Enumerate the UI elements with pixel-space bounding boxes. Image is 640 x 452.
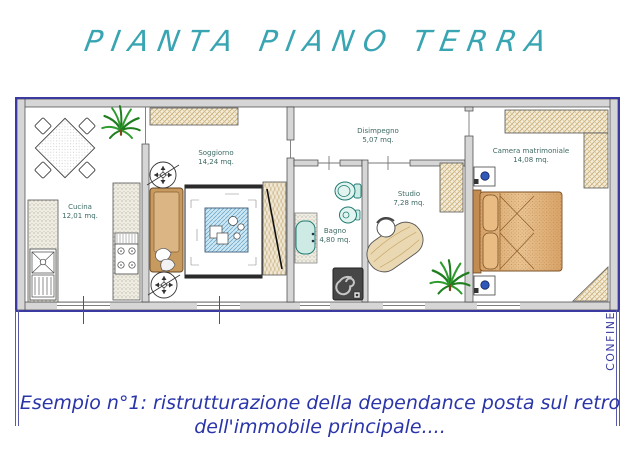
room-label-cucina: Cucina12,01 mq. (62, 203, 98, 221)
studio-cabinet (440, 163, 463, 212)
room-label-bagno: Bagno4,80 mq. (319, 227, 350, 245)
room-label-soggiorno: Soggiorno14,24 mq. (198, 149, 234, 167)
desk-chair (377, 218, 395, 237)
nightstand-top (474, 167, 495, 186)
kitchen-counter-left (28, 200, 58, 302)
bath-sink (295, 213, 317, 263)
caption: Esempio n°1: ristrutturazione della depe… (0, 392, 640, 440)
toilet (335, 182, 361, 200)
kitchen-counter-stove (113, 183, 140, 300)
room-label-disimpegno: Disimpegno5,07 mq. (357, 127, 399, 145)
wardrobe-top (505, 110, 608, 133)
section-tick-1 (83, 296, 84, 324)
floor-plan-drawing (17, 99, 618, 310)
closet-soggiorno (150, 108, 238, 125)
plant-kitchen (102, 106, 139, 138)
round-symbol-top (147, 162, 179, 188)
sofa (150, 188, 183, 272)
wardrobe-right (584, 133, 608, 188)
page-title: PIANTA PIANO TERRA (0, 24, 640, 58)
caption-line-1: Esempio n°1: ristrutturazione della depe… (0, 392, 640, 416)
double-bed (473, 190, 562, 273)
coffee-table (205, 208, 248, 252)
plant-studio (430, 260, 469, 293)
bidet (340, 207, 361, 223)
nightstand-bottom (474, 276, 495, 295)
corner-shelf (573, 267, 608, 301)
floor-plan-page: PIANTA PIANO TERRA (0, 0, 640, 452)
tv-cabinet (263, 182, 286, 275)
room-label-studio: Studio7,28 mq. (393, 190, 424, 208)
shower (333, 268, 363, 300)
caption-line-2: dell'immobile principale.... (0, 416, 640, 440)
kitchen-dining-set (35, 118, 96, 179)
section-tick-2 (219, 296, 220, 324)
round-symbol-bottom (148, 272, 180, 298)
room-label-camera: Camera matrimoniale14,08 mq. (493, 147, 569, 165)
boundary-label: CONFINE (604, 299, 618, 383)
floor-plan (15, 97, 620, 312)
